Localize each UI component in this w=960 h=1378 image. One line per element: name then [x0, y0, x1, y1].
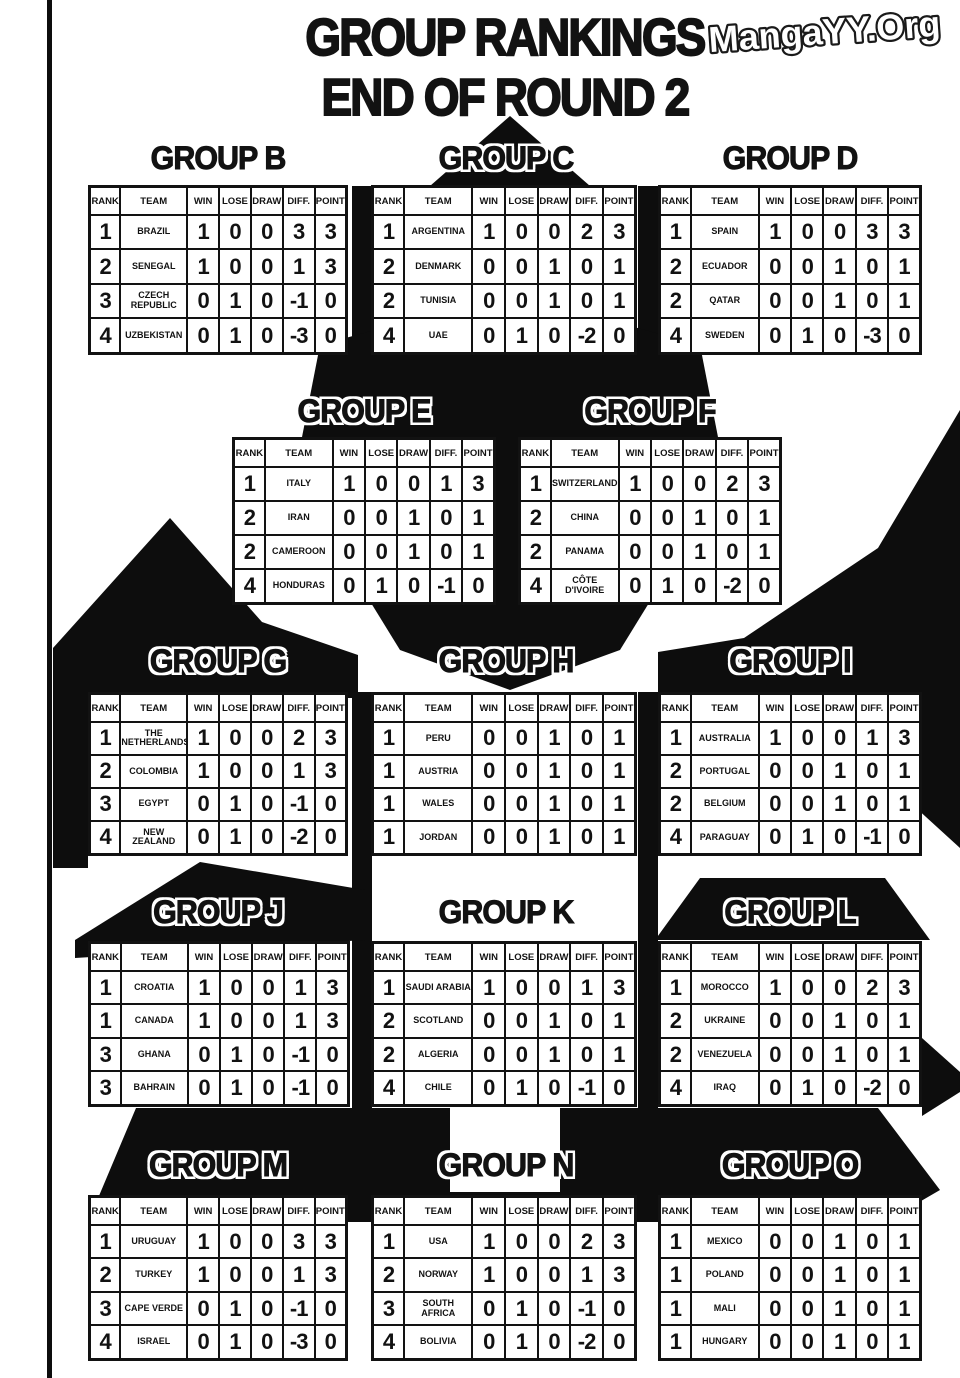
cell-team: CAMEROON	[265, 535, 333, 569]
cell-team: SWEDEN	[691, 318, 759, 353]
cell-rank: 1	[234, 467, 265, 501]
cell-team: MALI	[691, 1292, 759, 1325]
cell-value: 0	[759, 1325, 791, 1359]
cell-rank: 2	[660, 249, 691, 283]
cell-value: 0	[397, 569, 429, 604]
cell-value: 0	[888, 318, 920, 353]
cell-value: 1	[505, 318, 538, 353]
cell-value: 1	[397, 535, 429, 569]
column-header: LOSE	[505, 187, 538, 216]
cell-value: 1	[791, 318, 823, 353]
column-header: RANK	[660, 1197, 691, 1226]
group-c-table: RANKTEAMWINLOSEDRAWDIFF.POINT1ARGENTINA1…	[371, 185, 637, 355]
cell-value: 1	[538, 722, 571, 755]
cell-value: 0	[759, 1258, 791, 1291]
cell-value: 1	[219, 788, 251, 821]
table-row: 4CÔTE D'IVOIRE010-20	[520, 569, 781, 604]
group-n-table: RANKTEAMWINLOSEDRAWDIFF.POINT1USA100232N…	[371, 1195, 637, 1361]
table-row: 1JORDAN00101	[373, 821, 636, 855]
column-header: POINT	[888, 187, 920, 216]
column-header: WIN	[759, 694, 791, 723]
cell-value: 0	[472, 755, 505, 788]
cell-value: 1	[220, 1071, 252, 1105]
cell-value: 2	[570, 215, 603, 249]
cell-value: 0	[472, 249, 505, 283]
table-row: 1THE NETHERLANDS10023	[90, 722, 347, 755]
group-title-h: GROUP H	[439, 643, 574, 680]
cell-value: 0	[888, 821, 920, 855]
header-row: RANKTEAMWINLOSEDRAWDIFF.POINT	[660, 694, 921, 723]
cell-rank: 4	[373, 1071, 405, 1105]
table-row: 2COLOMBIA10013	[90, 755, 347, 788]
column-header: RANK	[373, 187, 405, 216]
header-row: RANKTEAMWINLOSEDRAWDIFF.POINT	[373, 694, 636, 723]
cell-value: 1	[603, 821, 636, 855]
cell-value: 1	[187, 215, 219, 249]
cell-value: 3	[603, 215, 636, 249]
cell-value: 3	[603, 971, 636, 1004]
cell-value: 0	[252, 1038, 284, 1071]
cell-value: 0	[430, 535, 462, 569]
cell-value: 3	[603, 1258, 636, 1291]
column-header: LOSE	[220, 943, 252, 972]
cell-rank: 2	[373, 284, 405, 318]
watermark-logo: MangaYY.Org	[690, 0, 960, 80]
column-header: DRAW	[397, 439, 429, 468]
column-header: LOSE	[505, 694, 538, 723]
table-row: 2ALGERIA00101	[373, 1038, 636, 1071]
cell-rank: 1	[660, 1225, 691, 1258]
cell-rank: 4	[90, 318, 121, 353]
cell-value: 1	[397, 501, 429, 535]
cell-value: 1	[888, 788, 920, 821]
cell-value: 0	[856, 249, 888, 283]
cell-value: 0	[791, 1225, 823, 1258]
cell-value: 1	[219, 1292, 251, 1325]
cell-value: 1	[603, 755, 636, 788]
cell-rank: 1	[90, 971, 121, 1004]
cell-value: 0	[472, 1038, 505, 1071]
cell-value: 0	[823, 821, 855, 855]
cell-value: 1	[603, 249, 636, 283]
cell-rank: 2	[373, 1258, 405, 1291]
table-row: 2BELGIUM00101	[660, 788, 921, 821]
header-row: RANKTEAMWINLOSEDRAWDIFF.POINT	[660, 1197, 921, 1226]
header-row: RANKTEAMWINLOSEDRAWDIFF.POINT	[660, 187, 921, 216]
cell-value: 1	[219, 284, 251, 318]
cell-value: 3	[315, 1258, 347, 1291]
cell-value: 1	[759, 722, 791, 755]
cell-value: 0	[538, 1258, 571, 1291]
group-title-m: GROUP M	[149, 1147, 287, 1184]
column-header: WIN	[187, 187, 219, 216]
column-header: DRAW	[538, 943, 571, 972]
cell-value: -3	[856, 318, 888, 353]
column-header: RANK	[234, 439, 265, 468]
cell-value: -1	[283, 1292, 315, 1325]
cell-value: 0	[315, 1325, 347, 1359]
table-row: 1WALES00101	[373, 788, 636, 821]
cell-value: 0	[791, 1004, 823, 1037]
column-header: DRAW	[823, 694, 855, 723]
column-header: DIFF.	[284, 943, 316, 972]
cell-value: 1	[283, 755, 315, 788]
cell-value: 0	[716, 535, 748, 569]
cell-value: 1	[619, 467, 651, 501]
cell-value: -1	[284, 1038, 316, 1071]
cell-team: NORWAY	[404, 1258, 472, 1291]
cell-value: 0	[252, 1004, 284, 1037]
column-header: DIFF.	[570, 1197, 603, 1226]
cell-value: 1	[603, 722, 636, 755]
cell-value: 0	[791, 722, 823, 755]
cell-value: 0	[252, 1071, 284, 1105]
group-title-j: GROUP J	[153, 894, 283, 931]
column-header: DRAW	[538, 694, 571, 723]
table-row: 3GHANA010-10	[90, 1038, 349, 1071]
cell-rank: 1	[520, 467, 551, 501]
table-row: 1MOROCCO10023	[660, 971, 921, 1004]
header-row: RANKTEAMWINLOSEDRAWDIFF.POINT	[520, 439, 781, 468]
group-k-table: RANKTEAMWINLOSEDRAWDIFF.POINT1SAUDI ARAB…	[371, 941, 637, 1107]
group-b-table: RANKTEAMWINLOSEDRAWDIFF.POINT1BRAZIL1003…	[88, 185, 348, 355]
cell-value: 0	[856, 284, 888, 318]
cell-value: 3	[462, 467, 494, 501]
column-header: RANK	[90, 187, 121, 216]
cell-value: 0	[570, 249, 603, 283]
cell-value: 0	[472, 1325, 505, 1359]
cell-rank: 2	[234, 535, 265, 569]
cell-team: JORDAN	[404, 821, 472, 855]
column-header: DIFF.	[283, 187, 315, 216]
column-header: POINT	[603, 1197, 636, 1226]
cell-value: -2	[570, 1325, 603, 1359]
table-row: 1CANADA10013	[90, 1004, 349, 1037]
column-header: LOSE	[365, 439, 397, 468]
cell-rank: 1	[373, 788, 405, 821]
cell-value: -2	[856, 1071, 888, 1105]
cell-value: 0	[856, 1292, 888, 1325]
group-e-table: RANKTEAMWINLOSEDRAWDIFF.POINT1ITALY10013…	[232, 437, 496, 605]
cell-value: 0	[570, 788, 603, 821]
cell-value: 1	[888, 1292, 920, 1325]
cell-value: 0	[252, 971, 284, 1004]
cell-value: 1	[187, 755, 219, 788]
column-header: LOSE	[505, 943, 538, 972]
cell-team: AUSTRALIA	[691, 722, 759, 755]
column-header: LOSE	[505, 1197, 538, 1226]
cell-value: -1	[430, 569, 462, 604]
column-header: TEAM	[691, 694, 759, 723]
cell-value: 0	[315, 1292, 347, 1325]
column-header: DRAW	[823, 943, 855, 972]
cell-value: 1	[472, 1225, 505, 1258]
column-header: DRAW	[252, 943, 284, 972]
table-row: 1AUSTRALIA10013	[660, 722, 921, 755]
cell-value: 1	[538, 755, 571, 788]
cell-team: SENEGAL	[120, 249, 187, 283]
column-header: DRAW	[823, 1197, 855, 1226]
column-header: RANK	[373, 694, 405, 723]
cell-value: 0	[505, 284, 538, 318]
cell-value: 3	[856, 215, 888, 249]
column-header: RANK	[373, 1197, 405, 1226]
cell-value: 1	[187, 1225, 219, 1258]
column-header: TEAM	[120, 187, 187, 216]
cell-value: 1	[888, 284, 920, 318]
cell-rank: 3	[90, 788, 121, 821]
column-header: DIFF.	[283, 694, 315, 723]
cell-value: 0	[791, 1292, 823, 1325]
cell-value: 1	[759, 215, 791, 249]
cell-value: 0	[603, 1325, 636, 1359]
group-title-d: GROUP D	[723, 140, 858, 177]
table-row: 2SCOTLAND00101	[373, 1004, 636, 1037]
table-row: 2IRAN00101	[234, 501, 495, 535]
column-header: RANK	[90, 694, 121, 723]
cell-value: 1	[538, 1038, 571, 1071]
cell-value: 0	[251, 821, 283, 855]
cell-team: MOROCCO	[691, 971, 759, 1004]
cell-rank: 4	[90, 821, 121, 855]
cell-value: -1	[283, 284, 315, 318]
header-row: RANKTEAMWINLOSEDRAWDIFF.POINT	[373, 943, 636, 972]
cell-value: 3	[283, 215, 315, 249]
table-row: 3SOUTH AFRICA010-10	[373, 1292, 636, 1325]
cell-rank: 2	[520, 535, 551, 569]
column-header: DRAW	[251, 1197, 283, 1226]
cell-team: IRAN	[265, 501, 333, 535]
table-row: 3CAPE VERDE010-10	[90, 1292, 347, 1325]
table-row: 1USA10023	[373, 1225, 636, 1258]
cell-value: 1	[462, 501, 494, 535]
cell-rank: 2	[660, 1004, 691, 1037]
cell-value: 0	[823, 318, 855, 353]
cell-team: USA	[404, 1225, 472, 1258]
column-header: POINT	[462, 439, 494, 468]
column-header: POINT	[748, 439, 780, 468]
cell-value: 0	[791, 971, 823, 1004]
cell-value: 1	[791, 1071, 823, 1105]
cell-rank: 1	[373, 1225, 405, 1258]
table-row: 3CZECH REPUBLIC010-10	[90, 284, 347, 318]
cell-value: 0	[619, 569, 651, 604]
cell-team: BELGIUM	[691, 788, 759, 821]
cell-rank: 2	[660, 284, 691, 318]
cell-value: 0	[759, 755, 791, 788]
cell-team: COLOMBIA	[120, 755, 187, 788]
cell-team: PANAMA	[551, 535, 619, 569]
group-o-table: RANKTEAMWINLOSEDRAWDIFF.POINT1MEXICO0010…	[658, 1195, 922, 1361]
cell-value: 0	[505, 788, 538, 821]
cell-value: 1	[651, 569, 683, 604]
cell-value: 0	[538, 1325, 571, 1359]
column-header: POINT	[603, 694, 636, 723]
cell-value: 0	[856, 1225, 888, 1258]
table-row: 2DENMARK00101	[373, 249, 636, 283]
cell-rank: 4	[660, 821, 691, 855]
column-header: DIFF.	[856, 694, 888, 723]
cell-value: 1	[888, 1258, 920, 1291]
column-header: LOSE	[791, 187, 823, 216]
group-m-table: RANKTEAMWINLOSEDRAWDIFF.POINT1URUGUAY100…	[88, 1195, 348, 1361]
table-row: 3BAHRAIN010-10	[90, 1071, 349, 1105]
cell-value: 0	[472, 722, 505, 755]
column-header: WIN	[333, 439, 365, 468]
group-f-table: RANKTEAMWINLOSEDRAWDIFF.POINT1SWITZERLAN…	[518, 437, 782, 605]
cell-team: CAPE VERDE	[120, 1292, 187, 1325]
cell-value: 0	[472, 788, 505, 821]
table-row: 2NORWAY10013	[373, 1258, 636, 1291]
cell-rank: 2	[660, 755, 691, 788]
cell-value: 0	[683, 467, 715, 501]
cell-value: 0	[187, 788, 219, 821]
cell-value: 0	[219, 215, 251, 249]
cell-value: 0	[316, 1038, 348, 1071]
table-row: 1PERU00101	[373, 722, 636, 755]
column-header: POINT	[315, 1197, 347, 1226]
column-header: TEAM	[404, 694, 472, 723]
column-header: RANK	[660, 187, 691, 216]
cell-team: HONDURAS	[265, 569, 333, 604]
column-header: POINT	[603, 943, 636, 972]
column-header: RANK	[373, 943, 405, 972]
cell-team: URUGUAY	[120, 1225, 187, 1258]
column-header: DIFF.	[570, 943, 603, 972]
cell-value: 3	[748, 467, 780, 501]
cell-value: 0	[251, 318, 283, 353]
cell-value: 0	[759, 1225, 791, 1258]
cell-rank: 2	[373, 249, 405, 283]
cell-rank: 1	[660, 1325, 691, 1359]
cell-value: 0	[570, 1004, 603, 1037]
table-row: 1SAUDI ARABIA10013	[373, 971, 636, 1004]
cell-value: 0	[759, 1071, 791, 1105]
table-row: 2TURKEY10013	[90, 1258, 347, 1291]
cell-value: 1	[505, 1292, 538, 1325]
cell-value: 0	[187, 1292, 219, 1325]
cell-team: SWITZERLAND	[551, 467, 619, 501]
cell-value: 0	[251, 1258, 283, 1291]
column-header: DRAW	[251, 694, 283, 723]
cell-value: 1	[856, 722, 888, 755]
cell-value: 0	[538, 1225, 571, 1258]
column-header: RANK	[520, 439, 551, 468]
table-row: 1AUSTRIA00101	[373, 755, 636, 788]
cell-value: 1	[538, 1004, 571, 1037]
cell-value: 0	[251, 1325, 283, 1359]
group-title-l: GROUP L	[724, 894, 855, 931]
column-header: POINT	[315, 187, 347, 216]
column-header: TEAM	[404, 187, 472, 216]
cell-value: 1	[188, 971, 220, 1004]
cell-rank: 4	[520, 569, 551, 604]
cell-value: 3	[283, 1225, 315, 1258]
cell-value: 1	[748, 535, 780, 569]
cell-value: 0	[365, 501, 397, 535]
cell-team: NEW ZEALAND	[120, 821, 187, 855]
cell-value: 0	[187, 284, 219, 318]
cell-value: 3	[316, 971, 348, 1004]
cell-value: 0	[791, 1038, 823, 1071]
cell-value: 0	[823, 722, 855, 755]
cell-value: 0	[333, 501, 365, 535]
cell-value: 2	[570, 1225, 603, 1258]
cell-rank: 2	[90, 1258, 121, 1291]
cell-rank: 2	[660, 788, 691, 821]
column-header: LOSE	[219, 187, 251, 216]
cell-value: 0	[759, 788, 791, 821]
column-header: TEAM	[120, 1197, 187, 1226]
cell-team: HUNGARY	[691, 1325, 759, 1359]
header-row: RANKTEAMWINLOSEDRAWDIFF.POINT	[90, 187, 347, 216]
column-header: DRAW	[251, 187, 283, 216]
table-row: 4HONDURAS010-10	[234, 569, 495, 604]
cell-rank: 3	[373, 1292, 405, 1325]
cell-team: BAHRAIN	[121, 1071, 188, 1105]
cell-value: 0	[759, 821, 791, 855]
header-row: RANKTEAMWINLOSEDRAWDIFF.POINT	[234, 439, 495, 468]
cell-value: 0	[505, 1004, 538, 1037]
table-row: 2PANAMA00101	[520, 535, 781, 569]
group-title-n: GROUP N	[439, 1147, 574, 1184]
cell-value: 0	[570, 821, 603, 855]
cell-value: 1	[888, 249, 920, 283]
column-header: POINT	[888, 943, 920, 972]
cell-rank: 2	[520, 501, 551, 535]
cell-rank: 1	[660, 1292, 691, 1325]
cell-value: 3	[603, 1225, 636, 1258]
table-row: 4CHILE010-10	[373, 1071, 636, 1105]
cell-value: 1	[823, 284, 855, 318]
cell-value: 1	[823, 1225, 855, 1258]
cell-value: 1	[823, 1258, 855, 1291]
cell-team: WALES	[404, 788, 472, 821]
cell-team: SPAIN	[691, 215, 759, 249]
cell-value: 0	[251, 1292, 283, 1325]
cell-value: 0	[823, 215, 855, 249]
cell-value: 3	[315, 215, 347, 249]
cell-value: 3	[888, 971, 920, 1004]
cell-value: 0	[251, 1225, 283, 1258]
column-header: LOSE	[219, 1197, 251, 1226]
cell-rank: 1	[660, 722, 691, 755]
cell-team: CHINA	[551, 501, 619, 535]
cell-value: 0	[619, 501, 651, 535]
table-row: 3EGYPT010-10	[90, 788, 347, 821]
column-header: DRAW	[538, 1197, 571, 1226]
cell-value: 0	[759, 318, 791, 353]
cell-value: 0	[759, 284, 791, 318]
cell-value: 1	[462, 535, 494, 569]
cell-value: 1	[888, 1225, 920, 1258]
cell-value: -3	[283, 1325, 315, 1359]
group-title-g: GROUP G	[150, 643, 286, 680]
cell-rank: 4	[373, 318, 405, 353]
cell-rank: 1	[90, 722, 121, 755]
column-header: DIFF.	[430, 439, 462, 468]
table-row: 2PORTUGAL00101	[660, 755, 921, 788]
cell-value: 0	[791, 284, 823, 318]
cell-value: 1	[538, 821, 571, 855]
cell-value: 1	[283, 1258, 315, 1291]
header-row: RANKTEAMWINLOSEDRAWDIFF.POINT	[90, 1197, 347, 1226]
cell-value: 1	[333, 467, 365, 501]
cell-value: 2	[716, 467, 748, 501]
background-shape	[922, 1038, 960, 1116]
table-row: 4NEW ZEALAND010-20	[90, 821, 347, 855]
cell-team: CANADA	[121, 1004, 188, 1037]
